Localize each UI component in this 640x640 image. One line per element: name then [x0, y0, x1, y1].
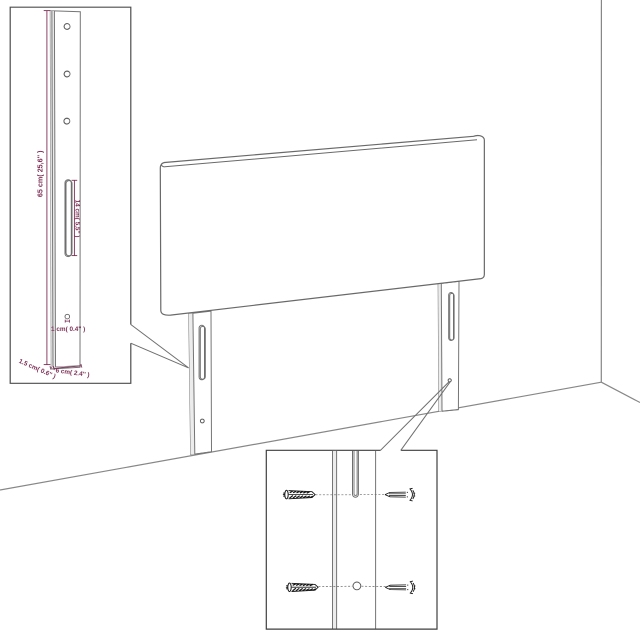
svg-text:14 cm( 5,5'' ): 14 cm( 5,5'' ) [74, 200, 81, 238]
svg-text:1 cm( 0.4'' ): 1 cm( 0.4'' ) [51, 326, 85, 333]
svg-text:65 cm( 25,6'' ): 65 cm( 25,6'' ) [36, 150, 45, 197]
